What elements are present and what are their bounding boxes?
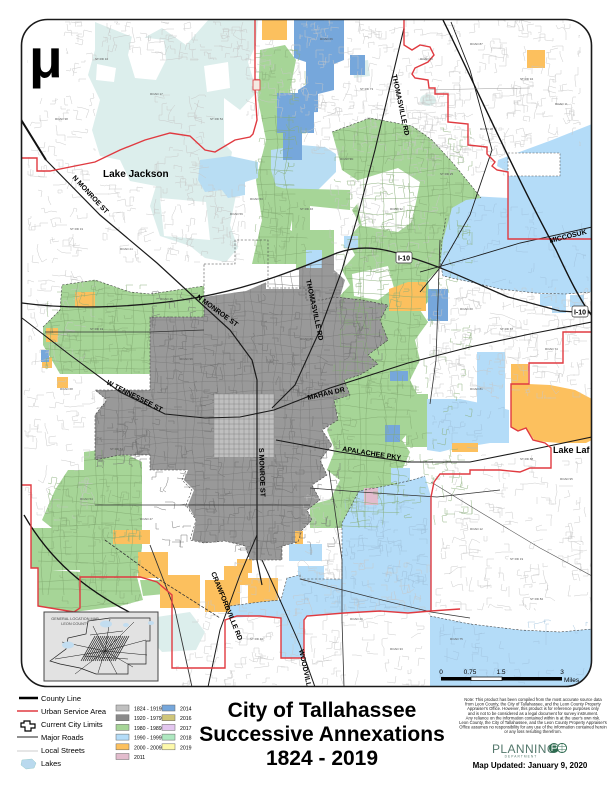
- svg-text:Successive Annexations: Successive Annexations: [199, 723, 445, 746]
- svg-text:ROAD 38: ROAD 38: [55, 117, 68, 121]
- svg-text:3: 3: [560, 669, 564, 676]
- svg-text:Lake Jackson: Lake Jackson: [103, 169, 169, 180]
- svg-text:Map Updated: January 9, 2020: Map Updated: January 9, 2020: [473, 761, 588, 770]
- svg-text:ST RD 13: ST RD 13: [90, 327, 103, 331]
- svg-text:ST RD 67: ST RD 67: [500, 327, 513, 331]
- svg-text:1990 - 1999: 1990 - 1999: [134, 736, 162, 742]
- svg-text:Lakes: Lakes: [41, 759, 61, 768]
- svg-text:ROAD 59: ROAD 59: [230, 212, 243, 216]
- svg-text:ROAD 17: ROAD 17: [150, 92, 163, 96]
- svg-text:ROAD 12: ROAD 12: [470, 527, 483, 531]
- svg-text:ROAD 81: ROAD 81: [470, 387, 483, 391]
- svg-text:1980 - 1989: 1980 - 1989: [134, 726, 162, 732]
- svg-text:2019: 2019: [180, 745, 192, 751]
- svg-text:ROAD 18: ROAD 18: [480, 127, 493, 131]
- svg-text:0.75: 0.75: [464, 669, 477, 676]
- svg-text:ROAD 24: ROAD 24: [120, 247, 133, 251]
- svg-text:0: 0: [439, 669, 443, 676]
- svg-text:ROAD 74: ROAD 74: [545, 347, 558, 351]
- svg-text:ROAD 53: ROAD 53: [250, 197, 263, 201]
- svg-text:ST RD 10: ST RD 10: [95, 57, 108, 61]
- svg-text:ROAD 96: ROAD 96: [180, 357, 193, 361]
- svg-text:Miles: Miles: [564, 677, 580, 684]
- svg-text:LEON COUNTY: LEON COUNTY: [61, 622, 89, 626]
- svg-text:ROAD 95: ROAD 95: [560, 477, 573, 481]
- svg-text:ROAD 45: ROAD 45: [160, 297, 173, 301]
- svg-text:ROAD 87: ROAD 87: [470, 42, 483, 46]
- svg-text:ROAD 11: ROAD 11: [555, 102, 568, 106]
- svg-text:ROAD 33: ROAD 33: [390, 647, 403, 651]
- svg-text:ROAD 75: ROAD 75: [450, 637, 463, 641]
- svg-text:ST RD 73: ST RD 73: [360, 87, 373, 91]
- svg-text:2011: 2011: [134, 755, 145, 761]
- svg-text:2000 - 2009: 2000 - 2009: [134, 745, 162, 751]
- svg-text:ST RD 52: ST RD 52: [210, 117, 223, 121]
- svg-text:ROAD 89: ROAD 89: [300, 337, 313, 341]
- svg-text:I-10: I-10: [398, 256, 410, 263]
- svg-text:Lake Laf: Lake Laf: [553, 445, 591, 455]
- svg-text:City of Tallahassee: City of Tallahassee: [228, 699, 417, 722]
- svg-text:Major Roads: Major Roads: [41, 733, 84, 742]
- svg-text:ROAD 26: ROAD 26: [350, 617, 363, 621]
- svg-text:2016: 2016: [180, 716, 192, 722]
- svg-text:ROAD 39: ROAD 39: [340, 157, 353, 161]
- svg-text:or any loss resulting therefro: or any loss resulting therefrom.: [504, 729, 562, 734]
- svg-text:2014: 2014: [180, 707, 192, 713]
- svg-text:ST RD 46: ST RD 46: [300, 207, 313, 211]
- svg-text:ROAD 68: ROAD 68: [60, 387, 73, 391]
- svg-text:ST RD 82: ST RD 82: [530, 597, 543, 601]
- svg-text:ROAD 60: ROAD 60: [460, 307, 473, 311]
- svg-text:ROAD 80: ROAD 80: [420, 57, 433, 61]
- svg-text:ROAD 32: ROAD 32: [390, 207, 403, 211]
- svg-text:I-10: I-10: [574, 310, 586, 317]
- svg-text:ROAD 66: ROAD 66: [320, 37, 333, 41]
- svg-text:ROAD 47: ROAD 47: [140, 517, 153, 521]
- svg-text:Current City Limits: Current City Limits: [41, 720, 103, 729]
- svg-text:ST RD 19: ST RD 19: [510, 557, 523, 561]
- svg-text:ROAD 54: ROAD 54: [80, 497, 93, 501]
- svg-text:ST RD 25: ST RD 25: [440, 172, 453, 176]
- svg-text:2017: 2017: [180, 726, 192, 732]
- svg-text:1.5: 1.5: [496, 669, 505, 676]
- svg-text:ST RD 40: ST RD 40: [250, 637, 263, 641]
- svg-text:Urban Service Area: Urban Service Area: [41, 707, 107, 716]
- svg-text:μ: μ: [29, 27, 63, 89]
- svg-text:2018: 2018: [180, 736, 192, 742]
- svg-text:1824 - 2019: 1824 - 2019: [266, 747, 378, 770]
- svg-text:ST RD 61: ST RD 61: [110, 447, 123, 451]
- svg-text:County Line: County Line: [41, 694, 81, 703]
- svg-text:ST RD 31: ST RD 31: [70, 227, 83, 231]
- svg-text:ST RD 88: ST RD 88: [520, 457, 533, 461]
- svg-text:ST RD 94: ST RD 94: [520, 77, 533, 81]
- svg-text:DEPARTMENT: DEPARTMENT: [505, 755, 538, 759]
- svg-text:1920 - 1979: 1920 - 1979: [134, 716, 162, 722]
- svg-text:1824 - 1919: 1824 - 1919: [134, 707, 162, 713]
- svg-text:Local Streets: Local Streets: [41, 746, 85, 755]
